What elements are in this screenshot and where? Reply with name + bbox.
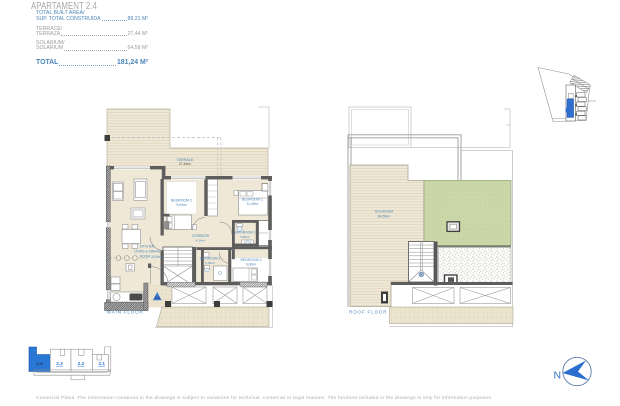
svg-text:BEDROOM 3: BEDROOM 3 <box>240 258 261 262</box>
svg-text:N: N <box>554 370 562 382</box>
svg-text:27,44m²: 27,44m² <box>179 162 192 166</box>
svg-text:3,50m²: 3,50m² <box>240 235 250 239</box>
svg-text:2.4: 2.4 <box>36 361 43 366</box>
svg-text:11,49m²: 11,49m² <box>247 202 260 206</box>
svg-text:ROOF FLOOR: ROOF FLOOR <box>349 310 387 315</box>
svg-text:KITCHEN: KITCHEN <box>140 245 155 249</box>
svg-text:ROOM: ROOM <box>140 255 151 259</box>
svg-text:2.4: 2.4 <box>155 296 160 300</box>
svg-text:4,14m²: 4,14m² <box>196 239 206 243</box>
svg-text:64,59m²: 64,59m² <box>378 215 391 219</box>
svg-text:33,49m²: 33,49m² <box>151 255 164 259</box>
svg-text:9,00m²: 9,00m² <box>246 263 257 267</box>
svg-text:BEDROOM 2: BEDROOM 2 <box>171 199 192 203</box>
svg-text:GOLF: GOLF <box>589 99 597 103</box>
svg-text:CORRIDOR: CORRIDOR <box>192 234 210 238</box>
svg-text:LIVING & DINING: LIVING & DINING <box>134 250 161 254</box>
svg-text:MAIN FLOOR: MAIN FLOOR <box>107 310 144 315</box>
svg-text:2.3: 2.3 <box>56 361 63 366</box>
svg-text:3,30m²: 3,30m² <box>205 261 215 265</box>
svg-text:9,00m²: 9,00m² <box>176 203 187 207</box>
svg-text:2.2: 2.2 <box>78 361 85 366</box>
svg-text:SOLARIUM: SOLARIUM <box>375 210 393 214</box>
svg-text:BEDROOM 1: BEDROOM 1 <box>242 198 263 202</box>
svg-text:BATHROOM 2: BATHROOM 2 <box>200 257 221 261</box>
svg-text:BATHROOM 1: BATHROOM 1 <box>235 231 256 235</box>
svg-text:2.1: 2.1 <box>99 361 106 366</box>
